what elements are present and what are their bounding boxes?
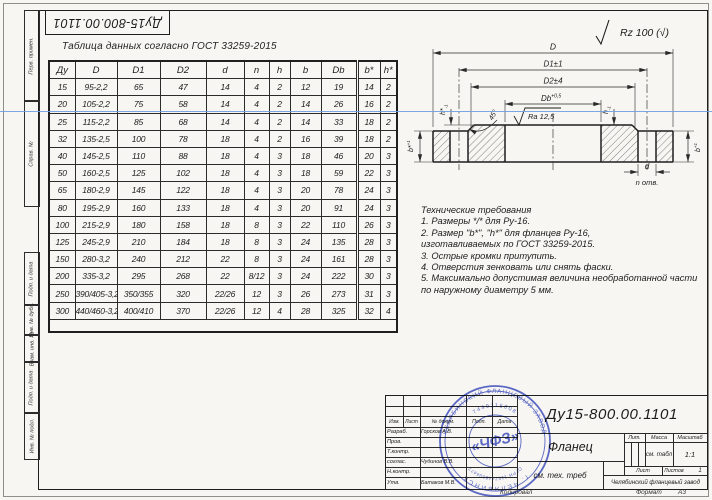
table-cell: 95-2,2	[75, 79, 117, 96]
tb-role-tkontr: Т.контр.	[387, 447, 420, 457]
table-cell: 14	[206, 113, 244, 130]
margin-cell-podp-data-2: Подп. и дата	[24, 361, 40, 414]
table-cell: 212	[160, 251, 206, 268]
table-cell: 24	[290, 268, 321, 285]
table-cell: 100	[49, 216, 75, 233]
tb-sheet-label: Лист	[624, 466, 662, 475]
table-cell: 4	[244, 199, 269, 216]
table-cell: 4	[244, 113, 269, 130]
table-cell: 3	[269, 251, 290, 268]
table-cell: 12	[244, 302, 269, 319]
table-cell: 4	[244, 79, 269, 96]
format-value: А3	[678, 489, 686, 496]
table-cell: 33	[321, 113, 357, 130]
table-header-row: ДуDD1D2dnhbDbb*h*	[49, 61, 397, 79]
table-cell: 32	[357, 302, 380, 319]
table-cell: 210	[117, 233, 160, 250]
table-cell: 3	[380, 251, 397, 268]
margin-cell-podp-data-1: Подп. и дата	[24, 252, 40, 306]
tb-role-utv: Утв.	[387, 477, 420, 489]
tb-sheets-label: Листов	[664, 466, 694, 475]
table-cell: 102	[160, 165, 206, 182]
table-cell: 18	[357, 113, 380, 130]
table-cell: 28	[357, 233, 380, 250]
table-cell: 31	[357, 285, 380, 302]
tb-mass-label: Масса	[645, 433, 673, 442]
table-row: 1595-2,2654714421219142	[49, 79, 397, 96]
dim-b-star-label: b*+1	[406, 140, 415, 152]
table-cell: 28	[290, 302, 321, 319]
table-cell: 145	[117, 182, 160, 199]
table-cell: 3	[380, 233, 397, 250]
table-cell: 22	[357, 165, 380, 182]
table-cell: 200	[49, 268, 75, 285]
table-cell: 3	[380, 147, 397, 164]
table-cell: 4	[244, 147, 269, 164]
table-cell: 4	[380, 302, 397, 319]
table-cell: 26	[357, 216, 380, 233]
table-cell: 18	[206, 199, 244, 216]
table-cell: 28	[357, 251, 380, 268]
table-cell: 2	[380, 79, 397, 96]
table-cell: 273	[321, 285, 357, 302]
table-cell: 18	[290, 147, 321, 164]
table-cell: 8	[244, 216, 269, 233]
table-cell: 440/460-3,2	[75, 302, 117, 319]
table-cell: 335-3,2	[75, 268, 117, 285]
table-cell: 18	[290, 165, 321, 182]
table-cell: 2	[269, 79, 290, 96]
table-cell: 22	[206, 268, 244, 285]
table-cell: 150	[49, 251, 75, 268]
margin-label: Инв. № подл.	[29, 419, 35, 454]
table-cell: 3	[380, 182, 397, 199]
column-header: Ду	[49, 61, 75, 79]
table-cell: 400/410	[117, 302, 160, 319]
tech-requirement-line: 5. Максимально допустимая величина необр…	[421, 273, 712, 284]
margin-label: Перв. примен.	[29, 37, 35, 74]
tb-role-soglas: соглас.	[387, 457, 420, 467]
table-cell: 18	[206, 216, 244, 233]
tech-requirements: Технические требования 1. Размеры */* дл…	[421, 205, 712, 296]
column-header: D2	[160, 61, 206, 79]
table-cell: 14	[290, 113, 321, 130]
svg-text:7449115808: 7449115808	[472, 403, 518, 416]
stamp-outer-top-text: ЧЕЛЯБИНСКИЙ ФЛАНЦЕВЫЙ ЗАВОД	[442, 388, 547, 435]
table-cell: 350/355	[117, 285, 160, 302]
drawing-sheet: Перв. примен. Справ. № Подп. и дата Инв.…	[0, 0, 712, 500]
table-cell: 65	[117, 79, 160, 96]
table-cell: 18	[206, 130, 244, 147]
table-cell: 3	[269, 216, 290, 233]
table-cell: 3	[380, 268, 397, 285]
table-cell: 2	[380, 113, 397, 130]
table-cell: 295	[117, 268, 160, 285]
table-cell: 24	[290, 251, 321, 268]
table-cell: 68	[160, 113, 206, 130]
table-cell: 2	[269, 130, 290, 147]
tb-lit-label: Лит.	[624, 433, 645, 442]
table-cell: 91	[321, 199, 357, 216]
tech-requirement-line: 1. Размеры */* для Ру-16.	[421, 216, 712, 227]
table-cell: 125	[49, 233, 75, 250]
table-cell: 300	[49, 302, 75, 319]
tech-requirement-line: по наружному диаметру 5 мм.	[421, 285, 712, 296]
table-cell: 158	[160, 216, 206, 233]
table-cell: 4	[269, 302, 290, 319]
roughness-corner-icon	[596, 20, 609, 44]
table-cell: 160-2,5	[75, 165, 117, 182]
table-cell: 3	[269, 165, 290, 182]
table-cell: 18	[206, 147, 244, 164]
tb-company: Челябинский фланцевый завод	[607, 475, 705, 489]
table-cell: 135-2,5	[75, 130, 117, 147]
table-cell: 19	[321, 79, 357, 96]
table-cell: 390/405-3,2	[75, 285, 117, 302]
table-cell: 16	[290, 130, 321, 147]
table-body: 1595-2,265471442121914220105-2,275581442…	[49, 79, 397, 320]
table-cell: 4	[244, 182, 269, 199]
tb-role-razrab: Разраб.	[387, 427, 420, 437]
svg-text:ОГРН 1157448004477: ОГРН 1157448004477	[467, 466, 523, 481]
table-cell: 161	[321, 251, 357, 268]
table-cell: 125	[117, 165, 160, 182]
n-holes-label: n отв.	[636, 178, 659, 187]
table-row: 50160-2,512510218431859223	[49, 165, 397, 182]
table-cell: 12	[290, 79, 321, 96]
table-cell: 3	[380, 216, 397, 233]
table-cell: 22	[206, 251, 244, 268]
tech-requirement-line: 2. Размер "b*", "h*" для фланцев Ру-16,	[421, 228, 712, 239]
flange-data-table: ДуDD1D2dnhbDbb*h* 1595-2,265471442121914…	[48, 60, 398, 333]
table-cell: 24	[357, 199, 380, 216]
table-cell: 320	[160, 285, 206, 302]
table-cell: 3	[380, 165, 397, 182]
table-cell: 20	[290, 199, 321, 216]
table-cell: 268	[160, 268, 206, 285]
table-row: 150280-3,2240212228324161283	[49, 251, 397, 268]
dim-h-label: h-1	[603, 106, 612, 114]
table-cell: 8/12	[244, 268, 269, 285]
table-cell: 18	[206, 182, 244, 199]
table-cell: 325	[321, 302, 357, 319]
table-cell: 22/26	[206, 302, 244, 319]
table-cell: 30	[357, 268, 380, 285]
table-cell: 18	[206, 165, 244, 182]
tb-scale-value: 1:1	[673, 442, 707, 466]
table-cell: 2	[380, 130, 397, 147]
table-row: 125245-2,9210184188324135283	[49, 233, 397, 250]
column-header: b	[290, 61, 321, 79]
tb-col-izm: Изм.	[386, 416, 403, 427]
table-cell: 46	[321, 147, 357, 164]
table-cell: 2	[269, 113, 290, 130]
tech-requirements-title: Технические требования	[421, 205, 712, 216]
doc-number-inverted-box: Ду15-800.00.1101	[45, 10, 170, 35]
table-cell: 110	[117, 147, 160, 164]
column-header: n	[244, 61, 269, 79]
tb-role-prov: Пров.	[387, 437, 420, 447]
svg-text:ЧЕЛЯБИНСКИЙ ФЛАНЦЕВЫЙ ЗАВОД: ЧЕЛЯБИНСКИЙ ФЛАНЦЕВЫЙ ЗАВОД	[442, 388, 547, 435]
margin-cell-vzam-inv: Взам. инв. №	[24, 334, 40, 363]
column-header: b*	[357, 61, 380, 79]
table-cell: 122	[160, 182, 206, 199]
table-empty-row	[49, 319, 397, 332]
stamp-inn-text: 7449115808	[472, 403, 518, 416]
margin-label: Подп. и дата	[29, 370, 35, 405]
table-cell: 39	[321, 130, 357, 147]
dim-h-star-label: h*-1	[440, 104, 449, 115]
table-cell: 3	[380, 285, 397, 302]
table-cell: 3	[269, 285, 290, 302]
table-cell: 40	[49, 147, 75, 164]
table-cell: 195-2,9	[75, 199, 117, 216]
table-cell: 18	[357, 130, 380, 147]
table-cell: 22/26	[206, 285, 244, 302]
table-caption: Таблица данных согласно ГОСТ 33259-2015	[62, 41, 277, 52]
table-row: 300440/460-3,2400/41037022/2612428325324	[49, 302, 397, 319]
table-cell: 26	[290, 285, 321, 302]
stamp-center-text: «ЧФЗ»	[469, 427, 520, 455]
doc-number-inverted: Ду15-800.00.1101	[53, 16, 161, 30]
table-cell: 135	[321, 233, 357, 250]
tech-requirement-line: 4. Отверстия зенковать или снять фаски.	[421, 262, 712, 273]
tb-col-list: Лист	[403, 416, 420, 427]
table-cell: 12	[244, 285, 269, 302]
tb-mass-value: см. табл	[645, 442, 673, 466]
tb-sheets-value: 1	[694, 466, 706, 475]
table-row: 32135-2,51007818421639182	[49, 130, 397, 147]
table-cell: 78	[160, 130, 206, 147]
table-cell: 85	[117, 113, 160, 130]
table-cell: 250	[49, 285, 75, 302]
tb-role-nkontr: Н.контр.	[387, 467, 420, 477]
table-cell: 370	[160, 302, 206, 319]
flange-section-drawing: Rz 100 (√) D D1±1 D2±4 Db+0,5 Ra 12,5 45…	[398, 12, 710, 198]
rz-corner-label: Rz 100 (√)	[620, 27, 669, 39]
table-cell: 3	[269, 147, 290, 164]
table-cell: 145-2,5	[75, 147, 117, 164]
table-cell: 215-2,9	[75, 216, 117, 233]
dim-d-label: d	[645, 162, 650, 171]
table-cell: 24	[290, 233, 321, 250]
table-cell: 18	[206, 233, 244, 250]
column-header: d	[206, 61, 244, 79]
table-cell: 240	[117, 251, 160, 268]
tech-requirement-line: 3. Острые кромки притупить.	[421, 251, 712, 262]
table-cell: 20	[290, 182, 321, 199]
table-cell: 180-2,9	[75, 182, 117, 199]
table-cell: 80	[49, 199, 75, 216]
table-cell: 65	[49, 182, 75, 199]
table-cell: 14	[206, 79, 244, 96]
table-cell: 32	[49, 130, 75, 147]
dim-D-label: D	[550, 42, 556, 52]
table-cell: 78	[321, 182, 357, 199]
table-cell: 88	[160, 147, 206, 164]
table-cell: 184	[160, 233, 206, 250]
margin-label: Справ. №	[29, 141, 35, 166]
table-row: 25115-2,2856814421433182	[49, 113, 397, 130]
table-cell: 15	[49, 79, 75, 96]
tech-requirements-list: 1. Размеры */* для Ру-16.2. Размер "b*",…	[421, 216, 712, 296]
tb-scale-label: Масштаб	[673, 433, 707, 442]
table-row: 250390/405-3,2350/35532022/2612326273313	[49, 285, 397, 302]
table-cell: 47	[160, 79, 206, 96]
table-row: 65180-2,914512218432078243	[49, 182, 397, 199]
tech-requirement-line: изготавливаемых по ГОСТ 33259-2015.	[421, 239, 712, 250]
table-cell: 3	[269, 233, 290, 250]
table-cell: 24	[357, 182, 380, 199]
dim-b-label: b+1	[693, 142, 702, 152]
table-cell: 110	[321, 216, 357, 233]
scan-line-artifact	[0, 111, 712, 112]
table-cell: 59	[321, 165, 357, 182]
table-cell: 222	[321, 268, 357, 285]
margin-cell-inv-podl: Инв. № подл.	[24, 412, 40, 460]
table-cell: 280-3,2	[75, 251, 117, 268]
column-header: h*	[380, 61, 397, 79]
column-header: Db	[321, 61, 357, 79]
table-cell: 22	[290, 216, 321, 233]
table-cell: 8	[244, 251, 269, 268]
dim-D2-label: D2±4	[543, 77, 563, 86]
margin-label: Подп. и дата	[29, 261, 35, 296]
column-header: h	[269, 61, 290, 79]
margin-cell-sprav-n: Справ. №	[24, 100, 40, 207]
table-cell: 160	[117, 199, 160, 216]
column-header: D	[75, 61, 117, 79]
table-row: 100215-2,9180158188322110263	[49, 216, 397, 233]
table-cell: 115-2,2	[75, 113, 117, 130]
table-row: 40145-2,51108818431846203	[49, 147, 397, 164]
dim-D1-label: D1±1	[543, 60, 562, 69]
table-row: 200335-3,2295268228/12324222303	[49, 268, 397, 285]
table-cell: 133	[160, 199, 206, 216]
format-label: Формат	[636, 489, 662, 496]
table-cell: 3	[269, 182, 290, 199]
column-header: D1	[117, 61, 160, 79]
table-cell: 3	[269, 268, 290, 285]
table-cell: 245-2,9	[75, 233, 117, 250]
table-cell: 3	[380, 199, 397, 216]
table-cell: 25	[49, 113, 75, 130]
table-cell: 14	[357, 79, 380, 96]
company-stamp: ЧЕЛЯБИНСКИЙ ФЛАНЦЕВЫЙ ЗАВОД г. ЧЕЛЯБИНСК…	[437, 383, 553, 499]
stamp-ogrn-text: ОГРН 1157448004477	[467, 466, 523, 481]
table-cell: 4	[244, 165, 269, 182]
table-row: 80195-2,916013318432091243	[49, 199, 397, 216]
table-cell: 8	[244, 233, 269, 250]
table-cell: 100	[117, 130, 160, 147]
table-cell: 3	[269, 199, 290, 216]
dim-Db-label: Db+0,5	[541, 94, 561, 104]
table-cell: 180	[117, 216, 160, 233]
table-cell: 50	[49, 165, 75, 182]
ra-label: Ra 12,5	[528, 112, 555, 121]
table-cell: 4	[244, 130, 269, 147]
margin-cell-perv-primen: Перв. примен.	[24, 10, 40, 102]
table-cell: 20	[357, 147, 380, 164]
